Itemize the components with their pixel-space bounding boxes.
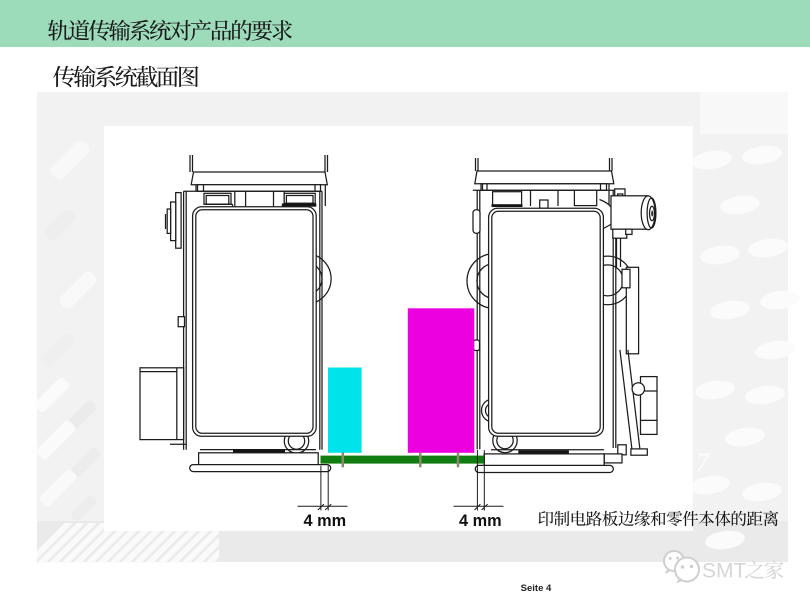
svg-text:SMT: SMT (702, 560, 747, 583)
svg-text:4 mm: 4 mm (459, 512, 502, 530)
svg-text:Seite 4: Seite 4 (521, 583, 552, 594)
svg-text:4 mm: 4 mm (304, 512, 347, 530)
svg-text:7: 7 (696, 448, 710, 477)
